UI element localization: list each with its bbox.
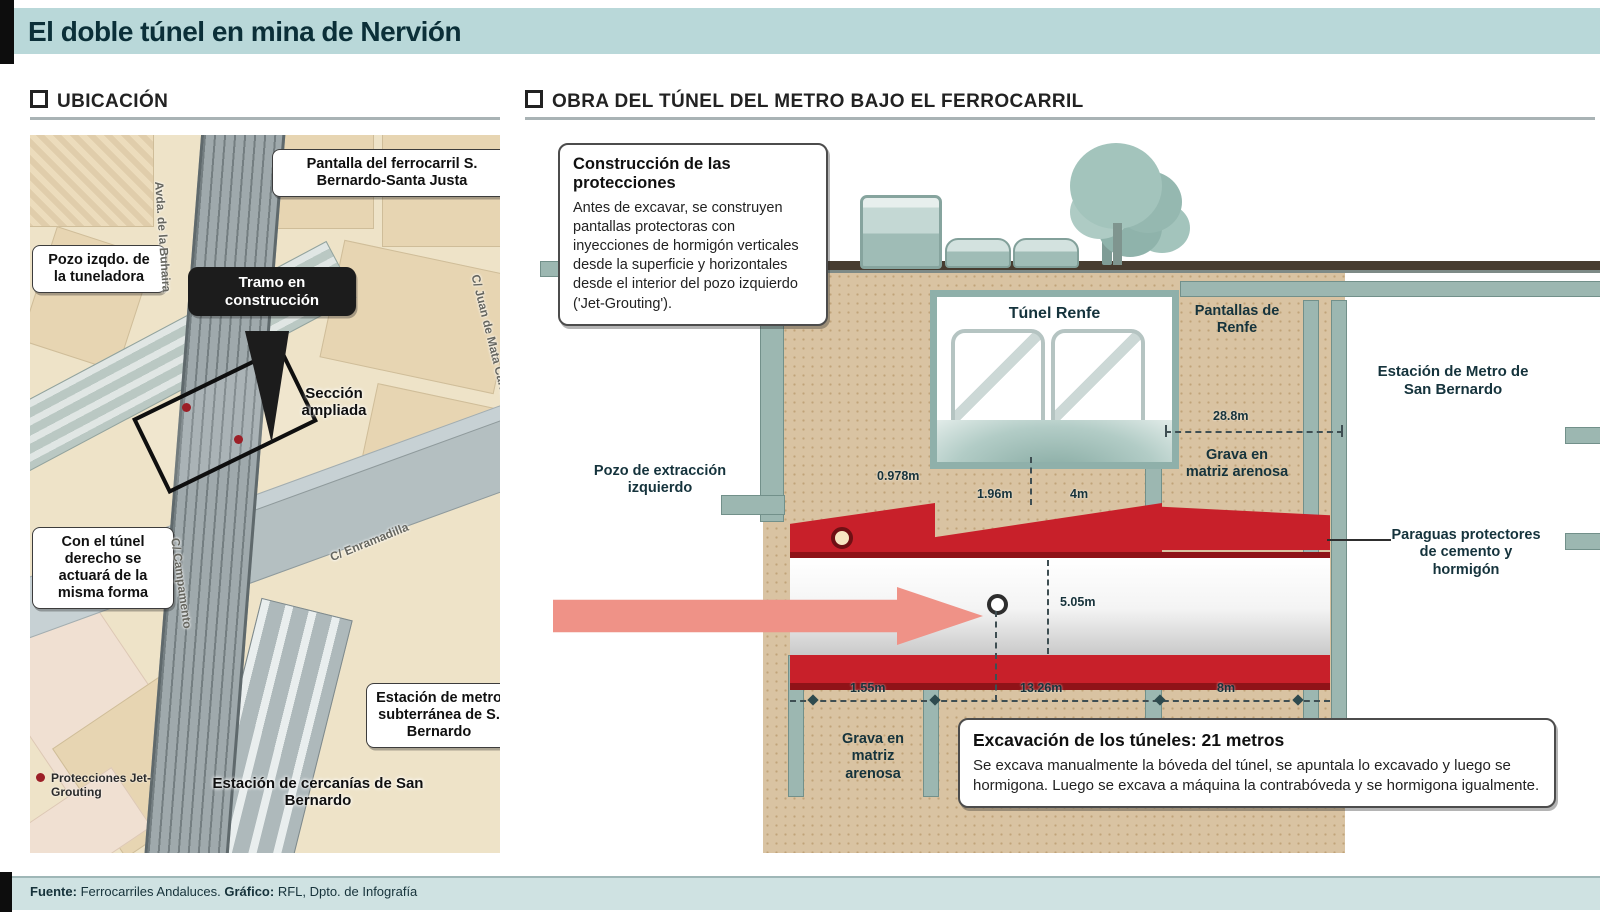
footer-credit-label: Gráfico:	[224, 884, 274, 899]
station-stub	[1565, 427, 1600, 444]
section-marker-icon	[525, 90, 543, 108]
footer-corner-mark	[0, 872, 12, 912]
section-header-location-label: UBICACIÓN	[57, 91, 168, 112]
callout-pantalla: Pantalla del ferrocarril S. Bernardo-San…	[272, 149, 500, 197]
label-estacion-metro-sb: Estación de Metro de San Bernardo	[1363, 363, 1543, 399]
label-pozo-extraccion: Pozo de extracción izquierdo	[565, 463, 755, 498]
renfe-tunnel-label: Túnel Renfe	[937, 305, 1172, 323]
excavation-info-box: Excavación de los túneles: 21 metros Se …	[958, 718, 1556, 808]
measure-tunnel-height: 5.05m	[1060, 595, 1095, 609]
station-stub	[1565, 533, 1600, 550]
callout-tramo: Tramo en construcción	[188, 267, 356, 316]
metro-station-void	[1345, 300, 1600, 700]
tree-trunk	[1113, 223, 1122, 265]
map-building-block	[319, 240, 500, 394]
measure-line-tunnel-height	[1047, 560, 1049, 654]
paraguas-leader-line	[1327, 539, 1391, 541]
measure-line-vertical	[1030, 457, 1032, 505]
callout-pozo: Pozo izqdo. de la tuneladora	[32, 245, 166, 293]
callout-estacion-metro: Estación de metro subterránea de S. Bern…	[366, 683, 500, 748]
renfe-tunnel-box: Túnel Renfe	[930, 290, 1179, 469]
excavation-box-body: Se excava manualmente la bóveda del túne…	[973, 756, 1541, 796]
infographic-page: El doble túnel en mina de Nervión UBICAC…	[0, 0, 1600, 912]
tunnel-axis-marker	[987, 594, 1008, 615]
excavation-box-title: Excavación de los túneles: 21 metros	[973, 730, 1541, 750]
measure-wall: 0.978m	[877, 469, 919, 483]
title-corner-mark	[0, 0, 14, 64]
jet-grouting-dot	[182, 403, 191, 412]
section-header-location: UBICACIÓN	[30, 90, 168, 113]
tree-icon	[1070, 143, 1162, 229]
construction-box-title: Construcción de las protecciones	[573, 155, 813, 193]
measure-line-28-8	[1165, 431, 1343, 433]
pozo-wall-stub	[721, 495, 785, 515]
section-marker-icon	[30, 90, 48, 108]
injection-point-marker	[831, 527, 853, 549]
callout-tunel-derecho: Con el túnel derecho se actuará de la mi…	[32, 527, 174, 609]
map-building-block	[30, 135, 154, 227]
pedestrian-icon	[1102, 229, 1112, 265]
footer-credit-value: RFL, Dpto. de Infografía	[274, 884, 417, 899]
construction-info-box: Construcción de las protecciones Antes d…	[558, 143, 828, 326]
measure-renfe-span: 28.8m	[1213, 409, 1248, 423]
label-grava-bottom: Grava en matriz arenosa	[823, 731, 923, 783]
measure-sep-small: 1.96m	[977, 487, 1012, 501]
measure-tick	[1341, 425, 1343, 437]
label-pantallas-renfe: Pantallas de Renfe	[1177, 303, 1297, 338]
measure-sep-four: 4m	[1070, 487, 1088, 501]
surface-wall-stub	[540, 261, 560, 277]
jet-grouting-dot	[234, 435, 243, 444]
measure-bottom-mid: 13.26m	[1020, 681, 1062, 695]
label-estacion-cercanias: Estación de cercanías de San Bernardo	[212, 775, 424, 810]
section-rule-right	[525, 117, 1595, 120]
tunnel-cross-section: Túnel Renfe 28.8m 0.978m 1.96m 4m 5.	[525, 135, 1600, 853]
section-header-works: OBRA DEL TÚNEL DEL METRO BAJO EL FERROCA…	[525, 90, 1084, 113]
axis-dashed-line	[995, 611, 997, 701]
station-roof-beam	[1180, 281, 1600, 297]
car-icon	[945, 238, 1011, 268]
legend-jet-grouting-label: Protecciones Jet-Grouting	[51, 771, 176, 799]
car-icon	[1013, 238, 1079, 268]
map-legend: Protecciones Jet-Grouting	[36, 771, 176, 799]
page-title: El doble túnel en mina de Nervión	[28, 16, 461, 48]
measure-bottom-left: 1.55m	[850, 681, 885, 695]
gravel-mound	[937, 420, 1172, 462]
label-grava-right: Grava en matriz arenosa	[1183, 447, 1291, 482]
bus-icon	[860, 195, 942, 269]
section-header-works-label: OBRA DEL TÚNEL DEL METRO BAJO EL FERROCA…	[552, 91, 1084, 112]
measure-tick	[1165, 425, 1167, 437]
section-rule-left	[30, 117, 500, 120]
location-map: Tramo en construcción Pantalla del ferro…	[30, 135, 500, 853]
footer-source-value: Ferrocarriles Andaluces.	[77, 884, 224, 899]
construction-box-body: Antes de excavar, se construyen pantalla…	[573, 199, 813, 314]
bottom-measure-line	[790, 700, 1330, 702]
label-seccion-ampliada: Sección ampliada	[282, 385, 386, 420]
jet-grouting-legend-dot	[36, 773, 45, 782]
measure-bottom-right: 8m	[1217, 681, 1235, 695]
label-paraguas: Paraguas protectores de cemento y hormig…	[1391, 527, 1541, 579]
footer-source-label: Fuente:	[30, 884, 77, 899]
footer-credits: Fuente: Ferrocarriles Andaluces. Gráfico…	[30, 884, 417, 899]
